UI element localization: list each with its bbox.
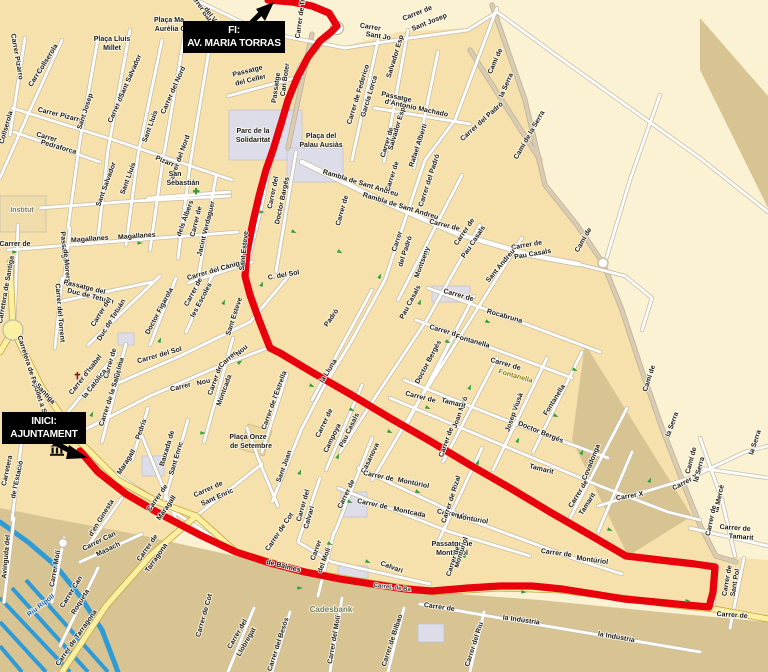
street-label: Plaça Lluís — [94, 36, 131, 43]
street-label: Carrer de — [0, 241, 31, 248]
street-label: Sebastián — [166, 180, 199, 187]
street-label: Plaça Ma — [154, 17, 184, 24]
map-canvas: Carrer Barberàdel VallèsPlaça LluísMille… — [0, 0, 768, 672]
street-label: Parc de la — [236, 128, 269, 135]
street-label: Solidaritat — [236, 137, 271, 144]
street-label: de Setembre — [230, 443, 272, 450]
marker-line: AV. MARIA TORRAS — [185, 37, 283, 50]
street-label: Institut — [10, 207, 34, 214]
street-label: Palau Ausiàs — [299, 142, 342, 149]
marker-line: AJUNTAMENT — [4, 428, 84, 441]
street-label: Plaça del — [306, 133, 336, 140]
street-label: San — [169, 171, 182, 178]
street-label: Cadesbank — [310, 605, 353, 614]
marker-line: INICI: — [4, 415, 84, 428]
marker-line: FI: — [185, 24, 283, 37]
street-label: Millet — [103, 45, 122, 52]
route-start-marker: INICI: AJUNTAMENT — [2, 412, 86, 444]
street-label: Plaça Onze — [229, 434, 266, 441]
route-end-marker: FI: AV. MARIA TORRAS — [183, 21, 285, 53]
map-viewport[interactable]: Carrer Barberàdel VallèsPlaça LluísMille… — [0, 0, 768, 672]
